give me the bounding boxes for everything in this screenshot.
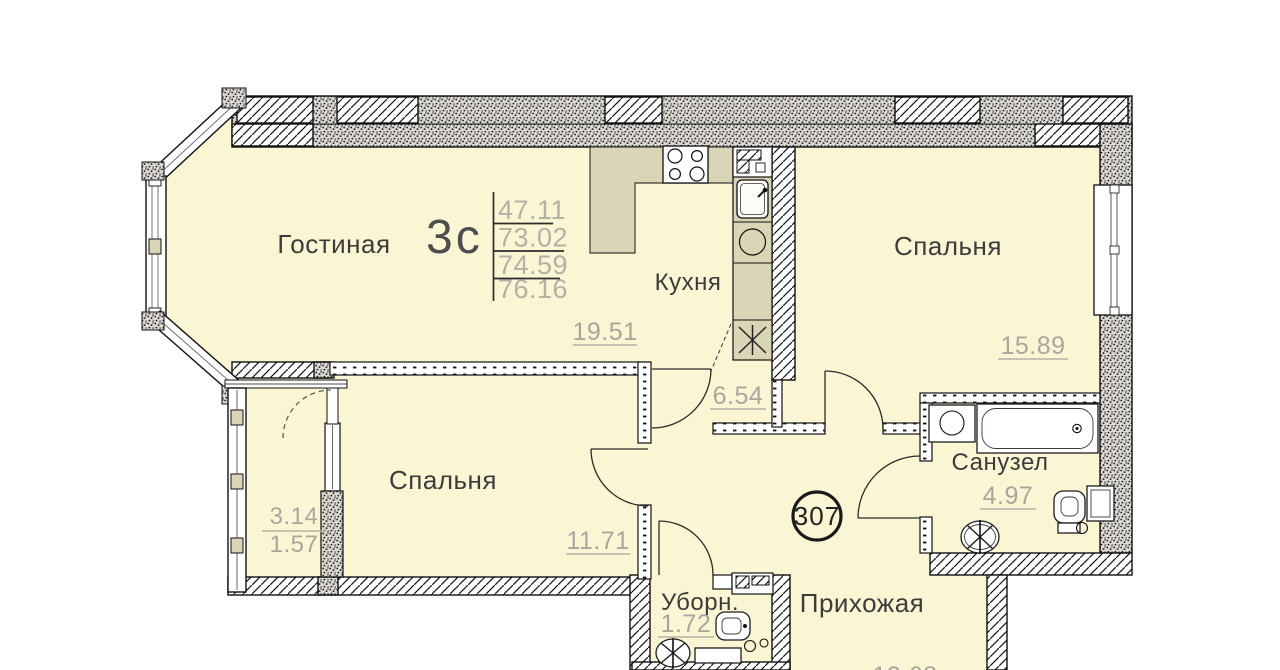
wall-hall-right xyxy=(987,575,1007,670)
wash-basin-icon xyxy=(656,638,690,668)
bedroom-window xyxy=(1094,185,1132,315)
room-area-bedroom-right: 15.89 xyxy=(1000,332,1065,360)
stove-icon xyxy=(663,146,708,183)
room-label-kitchen: Кухня xyxy=(655,269,722,296)
floor-plan: 3с 47.11 73.02 74.59 76.16 Гостиная 19.5… xyxy=(0,0,1280,670)
area-without-balcony: 73.02 xyxy=(498,223,568,253)
room-area-hallway: 12.68 xyxy=(872,662,937,670)
room-label-hallway: Прихожая xyxy=(800,588,924,618)
room-label-bedroom-right: Спальня xyxy=(894,231,1002,261)
room-label-living: Гостиная xyxy=(277,229,390,259)
room-area-wc: 1.72 xyxy=(661,610,712,638)
room-area-bathroom: 4.97 xyxy=(983,482,1034,510)
bathtub-icon xyxy=(977,404,1098,453)
wall-bathroom-bottom xyxy=(930,553,1132,575)
wall-wc-right xyxy=(772,575,790,670)
area-living-total: 47.11 xyxy=(498,195,566,225)
area-total: 76.16 xyxy=(498,274,568,304)
toilet-icon xyxy=(1054,491,1085,533)
room-area-kitchen: 6.54 xyxy=(713,382,764,410)
room-label-bedroom-left: Спальня xyxy=(389,465,497,495)
floor-plan-page: 3с 47.11 73.02 74.59 76.16 Гостиная 19.5… xyxy=(0,0,1280,670)
room-label-bathroom: Санузел xyxy=(952,449,1049,476)
kitchen-sink-icon xyxy=(737,180,768,218)
balcony-area-full: 3.14 xyxy=(270,503,319,530)
wall-bedroom-bottom xyxy=(228,577,648,595)
room-area-bedroom-left: 11.71 xyxy=(566,527,629,555)
wall-wc-left xyxy=(630,575,650,670)
wash-basin-icon xyxy=(961,520,999,554)
washing-machine-icon xyxy=(929,405,975,442)
wall-kitchen-shaft xyxy=(772,147,795,380)
unit-number: 307 xyxy=(794,501,840,531)
apartment-type: 3с xyxy=(426,211,483,264)
toilet-icon xyxy=(716,612,750,640)
room-area-living: 19.51 xyxy=(572,318,637,346)
balcony-door-leaf xyxy=(327,388,338,424)
balcony-area-reduced: 1.57 xyxy=(270,531,319,558)
vent-icon xyxy=(737,150,761,160)
